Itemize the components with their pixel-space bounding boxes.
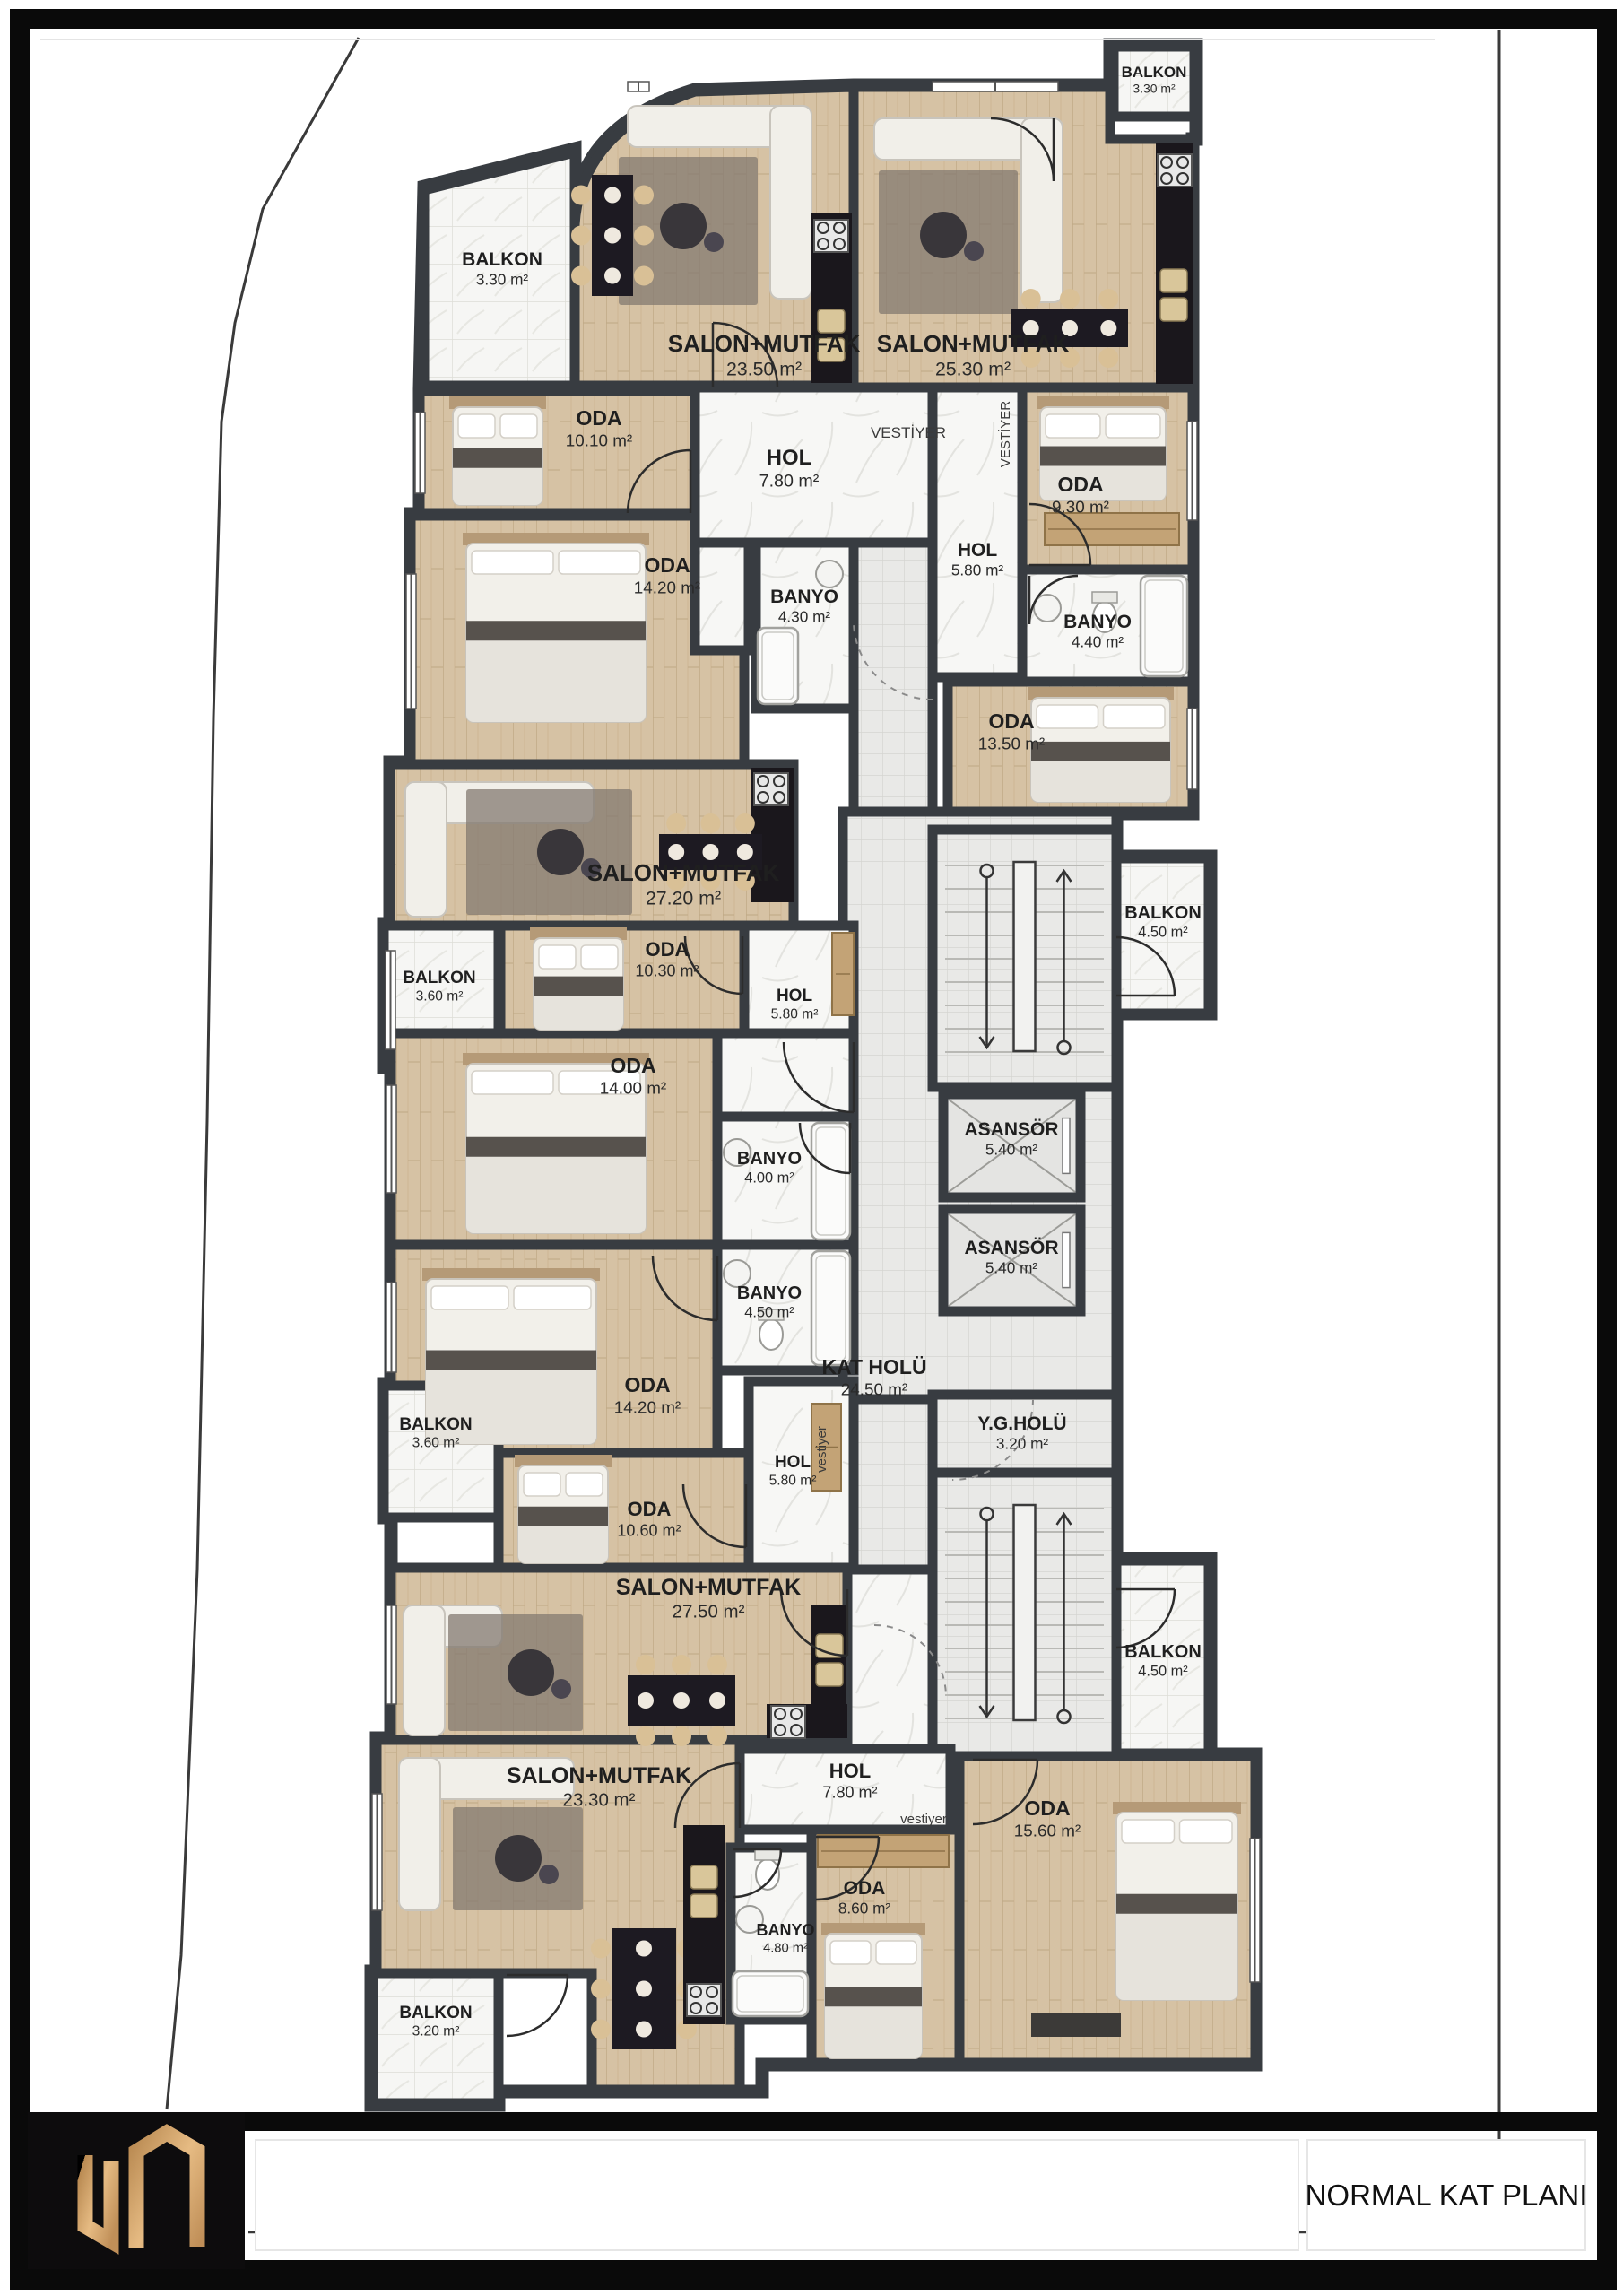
bathroom-sink	[1034, 595, 1061, 622]
bed-throw	[466, 621, 646, 640]
bed-pillow	[1037, 705, 1098, 728]
title-block-top-bar	[245, 2112, 1610, 2131]
dining-chair	[707, 1726, 727, 1746]
dining-chair	[672, 1655, 691, 1674]
dining-chair	[1098, 289, 1118, 309]
kitchen-sink	[690, 1894, 717, 1918]
dining-plate	[668, 844, 684, 860]
room-label-hol-580-sag: HOL5.80 m²	[951, 540, 1004, 578]
bed-throw	[1040, 447, 1166, 466]
room-label-hol-580-alt: HOL5.80 m²	[769, 1453, 817, 1488]
floor-plan-page: BALKON3.30 m²SALON+MUTFAK23.50 m²SALON+M…	[0, 0, 1623, 2296]
bed-pillow	[581, 945, 618, 969]
bed-pillow	[514, 1286, 591, 1309]
sofa	[399, 1758, 440, 1910]
side-table	[551, 1679, 571, 1699]
bed-throw	[825, 1987, 922, 2006]
bed-throw	[1116, 1894, 1237, 1914]
bed-pillow	[1104, 705, 1166, 728]
elevator-door	[1063, 1118, 1070, 1174]
bathtub	[733, 1971, 808, 2016]
wardrobe-label-vestiyer-ust: VESTİYER	[871, 424, 946, 441]
bed-pillow	[876, 1941, 916, 1964]
floor-plan-drawing: BALKON3.30 m²SALON+MUTFAK23.50 m²SALON+M…	[0, 0, 1623, 2296]
kitchen-sink	[816, 1663, 843, 1686]
dining-chair	[707, 1655, 727, 1674]
bed-pillow	[472, 1071, 553, 1094]
dining-chair	[701, 813, 721, 833]
kitchen-sink	[690, 1865, 717, 1889]
dining-plate	[636, 2022, 652, 2038]
side-table	[964, 241, 984, 261]
dining-chair	[571, 186, 591, 205]
bed-throw	[453, 448, 542, 468]
coffee-table	[495, 1835, 542, 1882]
company-logo	[28, 2112, 245, 2269]
bed-pillow	[539, 945, 576, 969]
dining-chair	[672, 1726, 691, 1746]
bench	[1031, 2013, 1121, 2037]
sofa	[770, 106, 811, 299]
dining-chair	[636, 1655, 655, 1674]
stair-rail	[1014, 1505, 1036, 1720]
dining-chair	[571, 266, 591, 286]
dining-chair	[1098, 348, 1118, 368]
coffee-table	[508, 1649, 554, 1696]
bed-pillow	[1122, 1820, 1175, 1843]
dining-plate	[1100, 320, 1116, 336]
bed-pillow	[472, 551, 553, 574]
sofa	[405, 782, 447, 917]
dining-plate	[709, 1692, 725, 1709]
dining-chair	[591, 2020, 611, 2039]
bed-pillow	[566, 1473, 603, 1496]
bathtub	[811, 1123, 850, 1239]
dining-chair	[666, 813, 686, 833]
parcel-line-left	[167, 38, 359, 2109]
bed-throw	[1031, 742, 1170, 761]
bed-pillow	[458, 414, 495, 438]
wardrobe-label-vestiyer-ust-sag: VESTİYER	[997, 401, 1013, 467]
door-swing	[507, 1975, 568, 2036]
title-block-bottom-bar	[28, 2260, 1606, 2290]
dining-chair	[591, 1939, 611, 1959]
bathroom-sink	[816, 561, 843, 587]
bed-throw	[466, 1137, 646, 1157]
bathtub	[758, 628, 798, 704]
bed-pillow	[524, 1473, 560, 1496]
dining-plate	[604, 187, 621, 204]
wardrobe-label-vestiyer-alt: vestiyer	[900, 1812, 947, 1827]
stair-rail	[1014, 862, 1036, 1051]
room-label-banyo-430: BANYO4.30 m²	[770, 587, 838, 625]
dining-plate	[638, 1692, 654, 1709]
plan-title: NORMAL KAT PLANI	[1306, 2179, 1588, 2212]
room-label-banyo-450: BANYO4.50 m²	[737, 1283, 802, 1320]
dining-chair	[1060, 289, 1080, 309]
kitchen-sink	[1160, 298, 1187, 321]
dining-plate	[703, 844, 719, 860]
room-hol-ara-2	[717, 1033, 854, 1117]
dining-plate	[604, 228, 621, 244]
bathtub	[1141, 576, 1187, 676]
room-label-banyo-440: BANYO4.40 m²	[1063, 612, 1132, 650]
bed-pillow	[500, 414, 537, 438]
coffee-table	[920, 212, 967, 258]
dining-chair	[636, 1726, 655, 1746]
bed-pillow	[830, 1941, 871, 1964]
bed-throw	[534, 977, 623, 996]
room-label-hol-780-ust: HOL7.80 m²	[759, 446, 820, 491]
dining-plate	[636, 1941, 652, 1957]
room-label-hol-580-orta: HOL5.80 m²	[771, 987, 819, 1022]
coffee-table	[660, 203, 707, 249]
room-label-banyo-480: BANYO4.80 m²	[756, 1921, 814, 1955]
wardrobe-label-vestiyer-orta: vestiyer	[814, 1426, 829, 1473]
dining-plate	[737, 844, 753, 860]
toilet	[756, 1859, 779, 1890]
elevator-door	[1063, 1232, 1070, 1287]
room-label-hol-780-alt: HOL7.80 m²	[822, 1760, 877, 1801]
dining-chair	[634, 186, 654, 205]
room-label-banyo-400: BANYO4.00 m²	[737, 1149, 802, 1186]
dining-plate	[673, 1692, 690, 1709]
bathtub	[811, 1251, 850, 1365]
bed-pillow	[1106, 414, 1160, 438]
side-table	[704, 232, 724, 252]
bed-throw	[518, 1507, 608, 1526]
toilet	[759, 1319, 783, 1350]
bed-pillow	[1180, 1820, 1233, 1843]
room-tile-ust	[854, 543, 933, 812]
title-block-left-box	[256, 2140, 1298, 2250]
side-table	[539, 1865, 559, 1884]
room-label-oda-860: ODA8.60 m²	[838, 1878, 891, 1917]
dining-plate	[604, 268, 621, 284]
bed-pillow	[431, 1286, 508, 1309]
bed-pillow	[559, 551, 640, 574]
dining-chair	[571, 226, 591, 246]
dining-chair	[1021, 289, 1041, 309]
toilet-tank	[1092, 592, 1117, 603]
kitchen-sink	[1160, 269, 1187, 292]
dining-chair	[591, 1979, 611, 1999]
title-block: NORMAL KAT PLANI	[28, 2112, 1610, 2290]
dining-plate	[636, 1981, 652, 1997]
bed-throw	[426, 1351, 596, 1370]
toilet-tank	[755, 1849, 780, 1860]
room-vestibul-alt	[847, 1570, 937, 1749]
dining-chair	[634, 266, 654, 286]
coffee-table	[537, 829, 584, 875]
sofa	[404, 1605, 445, 1735]
dining-chair	[634, 226, 654, 246]
bed-pillow	[1046, 414, 1100, 438]
dining-chair	[735, 813, 755, 833]
room-label-oda-930: ODA9.30 m²	[1052, 473, 1109, 516]
room-ara-hol-ust	[695, 543, 749, 650]
